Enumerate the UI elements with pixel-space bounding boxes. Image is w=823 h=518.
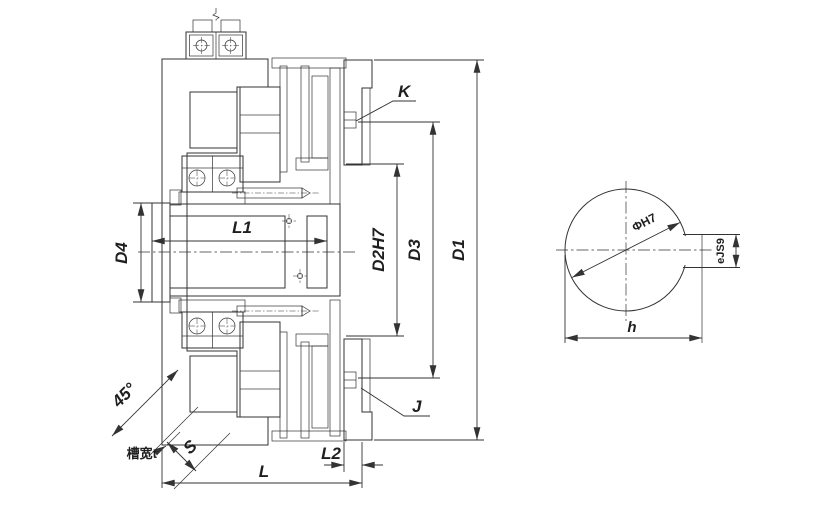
drive-cup-wall-top (330, 68, 340, 204)
disc-plate (301, 66, 309, 162)
terminal-stub-right (221, 20, 240, 32)
dim-label-s: S (179, 436, 201, 458)
callout-k-leader (356, 101, 416, 121)
slot-width-label: 槽宽t (127, 446, 158, 461)
main-section-view: D4 L1 D2H7 D3 D1 K J (108, 8, 484, 489)
dim-label-l1: L1 (232, 218, 252, 237)
hub-band-bottom (179, 300, 245, 312)
dim-label-d1: D1 (449, 239, 468, 261)
friction-face-top (362, 88, 370, 165)
disc-plate (312, 346, 328, 428)
dim-label-d3: D3 (405, 239, 424, 261)
rotor-band (240, 371, 280, 389)
rotor-band (240, 115, 280, 133)
terminal-box (186, 8, 246, 59)
arc-mask (681, 236, 701, 265)
rotor-disc-stack (232, 58, 346, 441)
rotor-body-bottom (240, 322, 280, 417)
corner-groove-line (167, 432, 180, 445)
drawing-canvas: D4 L1 D2H7 D3 D1 K J (0, 0, 823, 518)
flange-bottom (344, 339, 372, 440)
shaft-end-detail-view: ΦH7 eJS9 h (556, 181, 740, 343)
mounting-flange (344, 60, 372, 440)
dim-label-h: h (627, 319, 636, 336)
disc-plate (280, 66, 287, 172)
dim-label-45: 45° (108, 379, 140, 411)
slot-width-leader (156, 446, 166, 452)
wire-break-symbol (213, 8, 219, 21)
dimensions: D4 L1 D2H7 D3 D1 K J (108, 60, 484, 489)
clutch-section-drawing: D4 L1 D2H7 D3 D1 K J (0, 0, 823, 518)
dim-label-d2h7: D2H7 (369, 227, 388, 272)
callout-label-j: J (412, 397, 422, 416)
dim-label-keywidth: eJS9 (715, 238, 727, 264)
disc-plate (301, 342, 309, 438)
disc-plate (312, 76, 328, 158)
dim-label-d4: D4 (112, 242, 131, 264)
dim-label-bore: ΦH7 (630, 210, 659, 234)
drive-cup-wall-bottom (330, 300, 340, 436)
coil-window-bottom (190, 356, 237, 412)
coil-window-top (190, 92, 237, 148)
disc-plate (280, 332, 287, 438)
hub-collar (152, 203, 170, 302)
set-screw-marks (282, 214, 307, 283)
dim-label-l2: L2 (321, 444, 341, 463)
terminal-stub-left (193, 20, 212, 32)
flange-top (344, 60, 372, 165)
rotor-body-top (240, 87, 280, 182)
friction-face-bottom (362, 339, 370, 412)
hub-band-top (179, 192, 245, 204)
dim-label-l: L (259, 462, 269, 481)
callout-label-k: K (398, 82, 412, 101)
hub-body (170, 204, 340, 296)
